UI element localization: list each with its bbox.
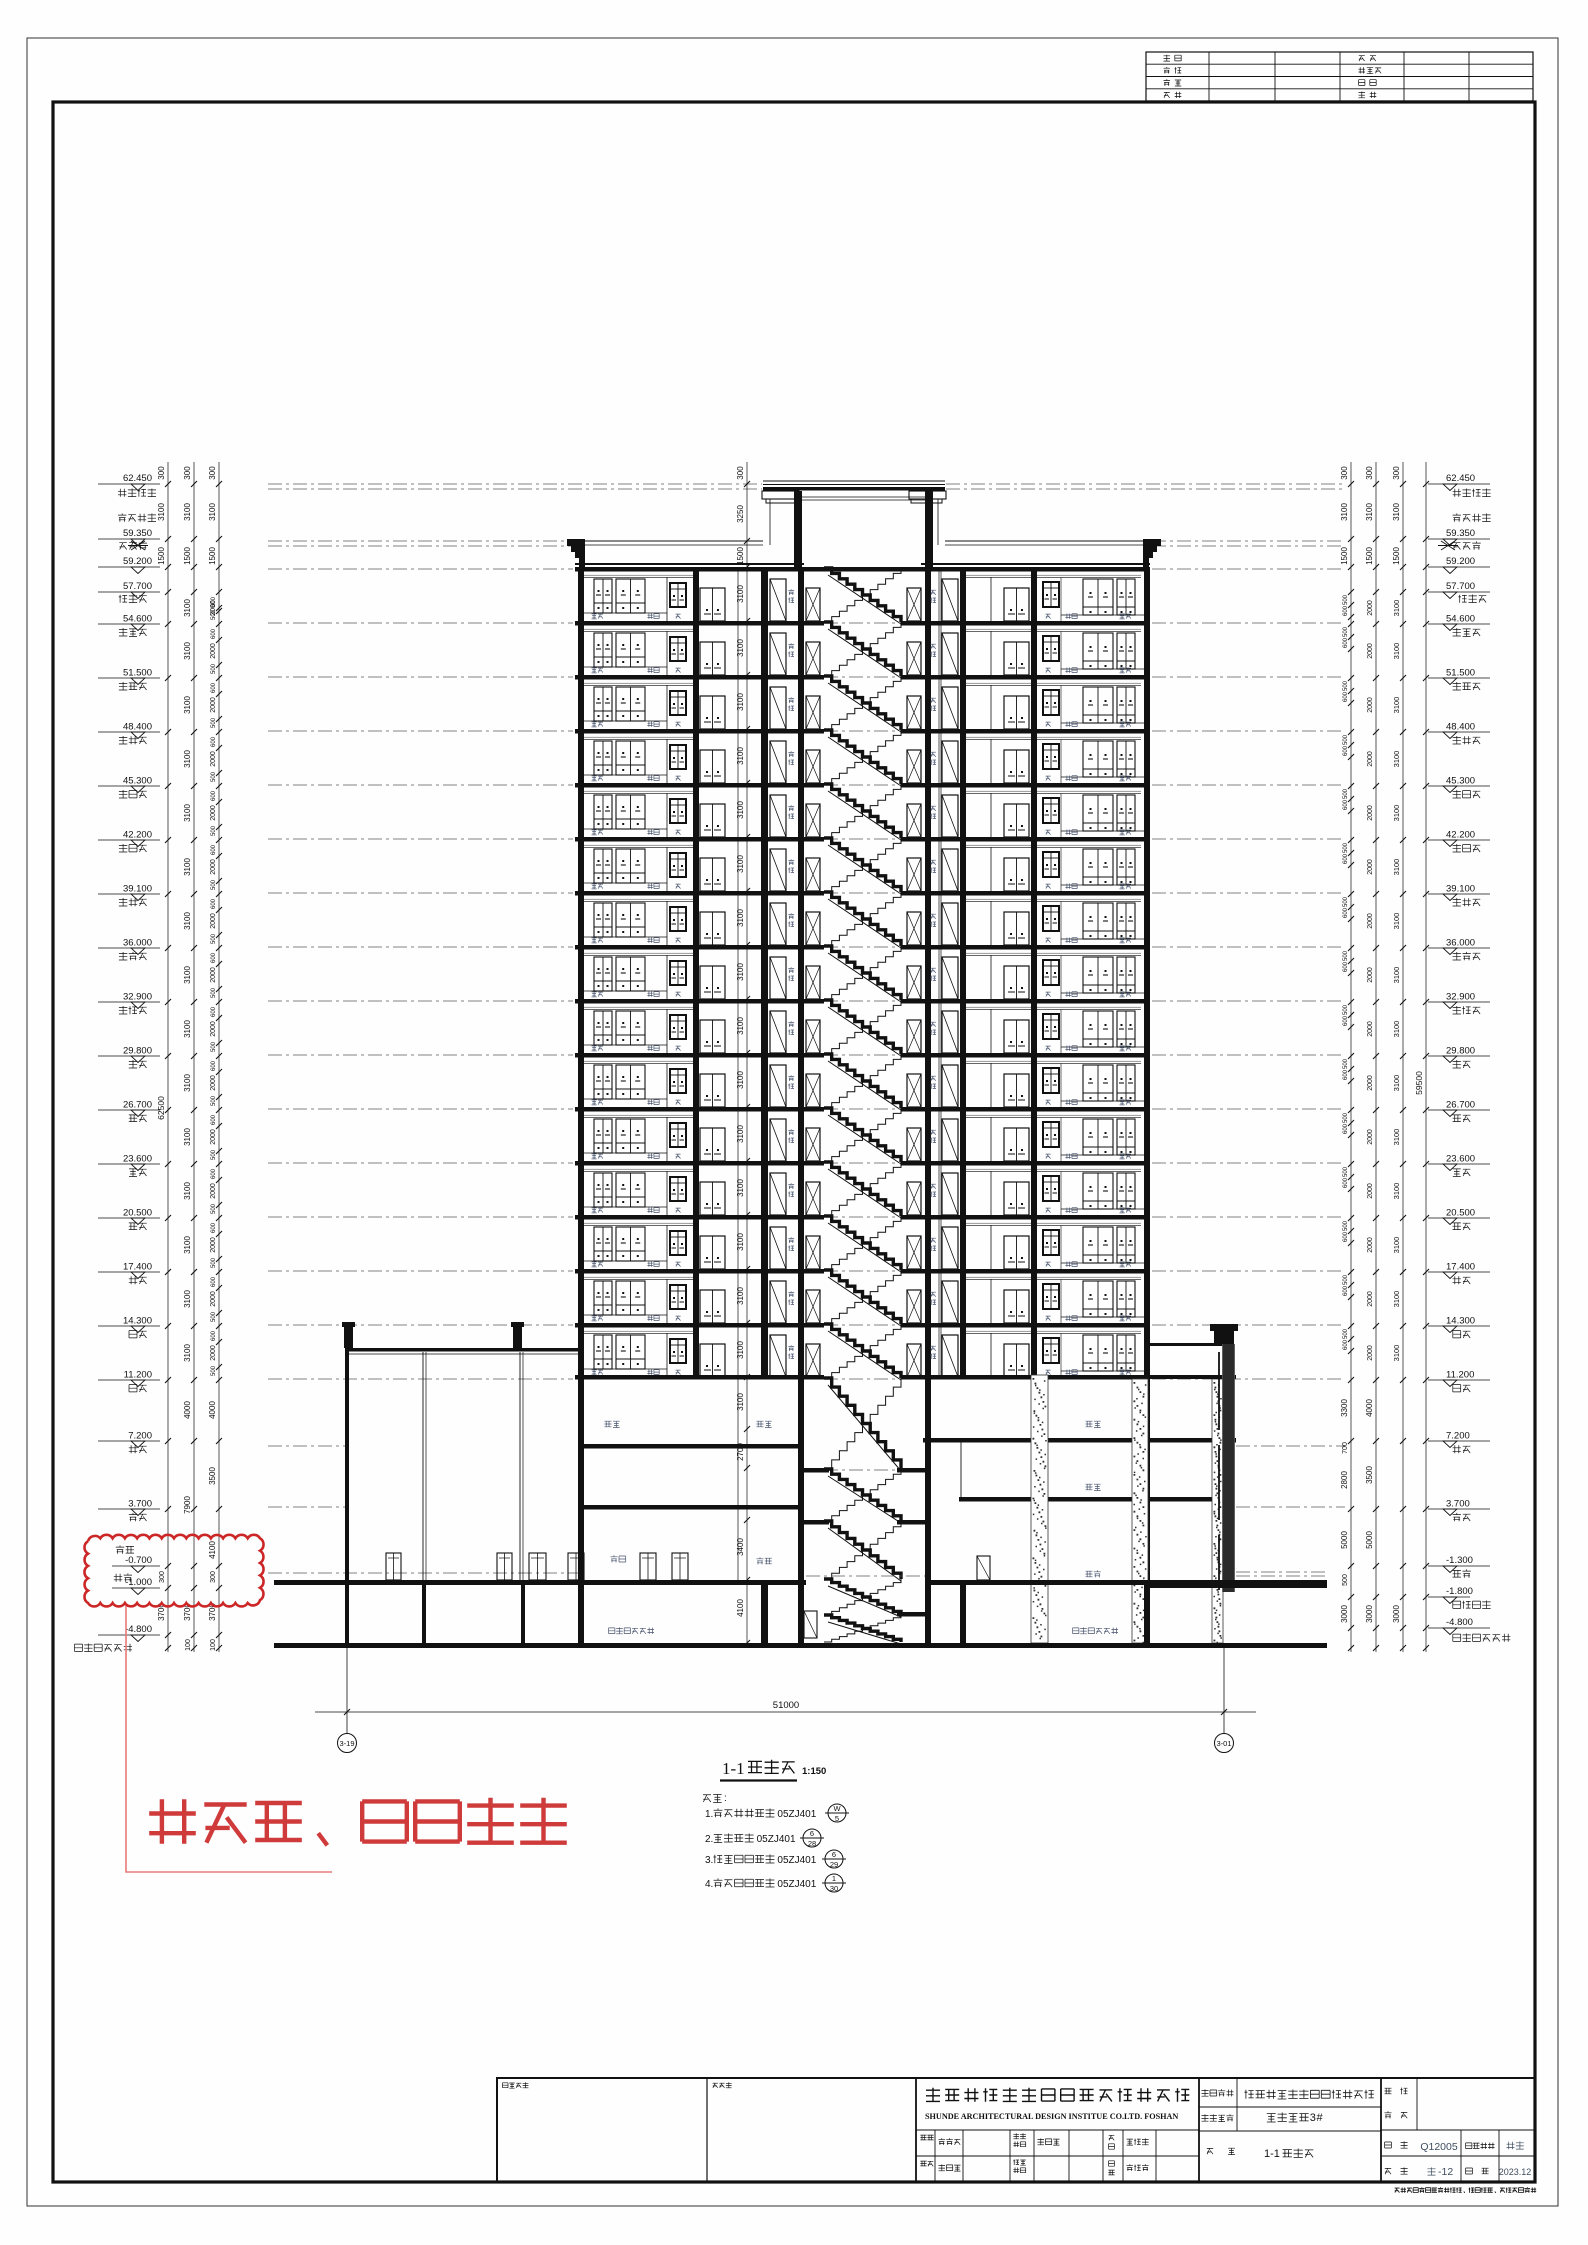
svg-text:3000: 3000 xyxy=(1392,1605,1401,1623)
svg-text:3400: 3400 xyxy=(736,1538,745,1556)
svg-text:500: 500 xyxy=(211,1149,217,1160)
svg-text:3.700: 3.700 xyxy=(1446,1499,1470,1510)
svg-text:2000: 2000 xyxy=(1367,1237,1374,1253)
svg-text:1500: 1500 xyxy=(1365,547,1374,565)
svg-text:1.: 1. xyxy=(705,1809,713,1820)
svg-text:2000: 2000 xyxy=(1367,1129,1374,1145)
svg-text:3100: 3100 xyxy=(183,750,192,768)
svg-text:500: 500 xyxy=(211,825,217,836)
svg-text:7900: 7900 xyxy=(183,1496,192,1514)
svg-text:11.200: 11.200 xyxy=(124,1370,152,1381)
svg-text:-4.800: -4.800 xyxy=(125,1624,152,1635)
svg-text:600: 600 xyxy=(1343,799,1349,810)
svg-text:3100: 3100 xyxy=(1340,503,1349,521)
svg-text:3100: 3100 xyxy=(1392,600,1401,617)
svg-text:600: 600 xyxy=(211,844,217,855)
svg-text:2000: 2000 xyxy=(210,1129,217,1145)
svg-text:1500: 1500 xyxy=(1392,547,1401,565)
svg-text:54.600: 54.600 xyxy=(1446,614,1475,625)
svg-text:2000: 2000 xyxy=(210,805,217,821)
svg-text:2000: 2000 xyxy=(1367,967,1374,983)
svg-text:59.200: 59.200 xyxy=(123,556,152,567)
svg-text:3100: 3100 xyxy=(183,912,192,930)
svg-text:2000: 2000 xyxy=(1367,1291,1374,1307)
svg-text:500: 500 xyxy=(1343,1058,1349,1069)
svg-text:17.400: 17.400 xyxy=(1446,1262,1475,1273)
svg-text:59.350: 59.350 xyxy=(123,528,152,539)
svg-text:26.700: 26.700 xyxy=(1446,1100,1475,1111)
svg-text:30: 30 xyxy=(830,1884,838,1893)
svg-text:3100: 3100 xyxy=(183,1290,192,1308)
svg-text:3100: 3100 xyxy=(736,963,745,981)
svg-text:3100: 3100 xyxy=(1392,697,1401,714)
svg-text:3500: 3500 xyxy=(1365,1466,1374,1484)
svg-text:3100: 3100 xyxy=(1392,751,1401,768)
svg-text:600: 600 xyxy=(1343,1069,1349,1080)
svg-text:-4.800: -4.800 xyxy=(1446,1617,1473,1628)
svg-text:500: 500 xyxy=(1343,626,1349,637)
svg-text:3100: 3100 xyxy=(183,1074,192,1092)
svg-text:32.900: 32.900 xyxy=(123,992,152,1003)
svg-text:600: 600 xyxy=(1343,691,1349,702)
svg-text:05ZJ401: 05ZJ401 xyxy=(777,1879,816,1890)
svg-text:500: 500 xyxy=(1343,1166,1349,1177)
svg-text:48.400: 48.400 xyxy=(123,722,152,733)
svg-text:3100: 3100 xyxy=(183,858,192,876)
svg-text:500: 500 xyxy=(1343,896,1349,907)
svg-text:7.200: 7.200 xyxy=(128,1431,152,1442)
svg-text:2000: 2000 xyxy=(1367,1075,1374,1091)
svg-text:3100: 3100 xyxy=(736,1071,745,1089)
svg-text:300: 300 xyxy=(183,466,192,480)
svg-text:2000: 2000 xyxy=(210,1183,217,1199)
svg-text:3100: 3100 xyxy=(1392,913,1401,930)
svg-text:W: W xyxy=(833,1804,841,1813)
svg-text:3100: 3100 xyxy=(1392,1291,1401,1308)
svg-text:1500: 1500 xyxy=(1340,547,1349,565)
svg-text:29.800: 29.800 xyxy=(123,1046,152,1057)
svg-text:45.300: 45.300 xyxy=(123,776,152,787)
svg-text:600: 600 xyxy=(211,628,217,639)
svg-text:1:150: 1:150 xyxy=(802,1766,826,1777)
svg-text:4100: 4100 xyxy=(208,1541,217,1559)
svg-text:#: # xyxy=(1317,2112,1324,2124)
svg-text:23.600: 23.600 xyxy=(1446,1154,1475,1165)
svg-text::: : xyxy=(724,1793,727,1804)
svg-text:3100: 3100 xyxy=(736,801,745,819)
svg-text:300: 300 xyxy=(736,466,745,480)
svg-text:42.200: 42.200 xyxy=(1446,830,1475,841)
svg-text:51000: 51000 xyxy=(773,1700,799,1711)
svg-text:3250: 3250 xyxy=(736,505,745,523)
svg-text:300: 300 xyxy=(1365,466,1374,480)
svg-text:3100: 3100 xyxy=(736,909,745,927)
svg-text:600: 600 xyxy=(211,1114,217,1125)
svg-text:-1.300: -1.300 xyxy=(1446,1555,1473,1566)
svg-text:3100: 3100 xyxy=(1392,1183,1401,1200)
svg-text:600: 600 xyxy=(211,1222,217,1233)
svg-text:4000: 4000 xyxy=(208,1401,217,1419)
svg-text:Q12005: Q12005 xyxy=(1420,2141,1458,2153)
svg-text:51.500: 51.500 xyxy=(1446,668,1475,679)
svg-text:600: 600 xyxy=(1343,605,1349,616)
svg-text:500: 500 xyxy=(1343,594,1349,605)
svg-text:42.200: 42.200 xyxy=(123,830,152,841)
svg-text:59500: 59500 xyxy=(1414,1071,1424,1095)
svg-text:3100: 3100 xyxy=(183,642,192,660)
svg-text:05ZJ401: 05ZJ401 xyxy=(777,1855,816,1866)
svg-text:39.100: 39.100 xyxy=(123,884,152,895)
svg-text:3100: 3100 xyxy=(736,1341,745,1359)
svg-text:3100: 3100 xyxy=(736,1287,745,1305)
svg-text:3100: 3100 xyxy=(1392,1075,1401,1092)
svg-text:3100: 3100 xyxy=(157,503,166,521)
svg-text:3100: 3100 xyxy=(183,1128,192,1146)
svg-text:2000: 2000 xyxy=(210,1291,217,1307)
svg-text:300: 300 xyxy=(157,466,166,480)
svg-text:500: 500 xyxy=(211,1257,217,1268)
svg-text:2000: 2000 xyxy=(210,751,217,767)
svg-text:2000: 2000 xyxy=(210,643,217,659)
svg-text:500: 500 xyxy=(211,717,217,728)
svg-text:2000: 2000 xyxy=(1367,600,1374,616)
svg-text:2000: 2000 xyxy=(210,913,217,929)
svg-text:500: 500 xyxy=(1343,950,1349,961)
svg-text:3100: 3100 xyxy=(736,1017,745,1035)
svg-text:3100: 3100 xyxy=(736,585,745,603)
svg-text:05ZJ401: 05ZJ401 xyxy=(777,1809,816,1820)
svg-text:36.000: 36.000 xyxy=(123,938,152,949)
svg-text:2000: 2000 xyxy=(1367,643,1374,659)
svg-text:2.: 2. xyxy=(705,1834,713,1845)
svg-text:-12: -12 xyxy=(1438,2166,1453,2178)
svg-text:3.700: 3.700 xyxy=(128,1499,152,1510)
svg-text:29.800: 29.800 xyxy=(1446,1046,1475,1057)
svg-text:3100: 3100 xyxy=(736,855,745,873)
svg-text:2000: 2000 xyxy=(1367,697,1374,713)
svg-text:1500: 1500 xyxy=(208,547,217,565)
svg-text:500: 500 xyxy=(1343,842,1349,853)
svg-text:36.000: 36.000 xyxy=(1446,938,1475,949)
svg-text:3000: 3000 xyxy=(1340,1605,1349,1623)
svg-text:3100: 3100 xyxy=(736,747,745,765)
svg-text:2000: 2000 xyxy=(1367,859,1374,875)
svg-text:17.400: 17.400 xyxy=(123,1262,152,1273)
svg-text:5: 5 xyxy=(835,1814,839,1823)
svg-text:500: 500 xyxy=(211,933,217,944)
svg-text:1: 1 xyxy=(832,1874,836,1883)
svg-text:500: 500 xyxy=(1343,1112,1349,1123)
svg-text:600: 600 xyxy=(211,898,217,909)
svg-text:600: 600 xyxy=(211,1060,217,1071)
svg-text:2000: 2000 xyxy=(210,1237,217,1253)
svg-text:11.200: 11.200 xyxy=(1446,1370,1474,1381)
svg-text:100: 100 xyxy=(210,1639,217,1651)
svg-text:20.500: 20.500 xyxy=(1446,1208,1475,1219)
svg-text:500: 500 xyxy=(211,1365,217,1376)
svg-text:600: 600 xyxy=(1343,961,1349,972)
svg-text:3100: 3100 xyxy=(736,1393,745,1411)
svg-text:600: 600 xyxy=(211,1330,217,1341)
svg-text:SHUNDE ARCHITECTURAL DESIGN: SHUNDE ARCHITECTURAL DESIGN INSTITUE CO.… xyxy=(925,2112,1178,2121)
svg-text:300: 300 xyxy=(210,1571,217,1583)
svg-text:2000: 2000 xyxy=(210,1075,217,1091)
svg-text:3100: 3100 xyxy=(1392,805,1401,822)
svg-text:600: 600 xyxy=(211,1276,217,1287)
svg-text:-1.800: -1.800 xyxy=(1446,1586,1473,1597)
svg-text:700: 700 xyxy=(1342,1442,1349,1454)
svg-text:57.700: 57.700 xyxy=(123,581,152,592)
svg-text:600: 600 xyxy=(1343,637,1349,648)
svg-text:28: 28 xyxy=(808,1839,816,1848)
svg-text:3500: 3500 xyxy=(208,1467,217,1485)
svg-text:2000: 2000 xyxy=(210,859,217,875)
svg-text:20.500: 20.500 xyxy=(123,1208,152,1219)
svg-text:3100: 3100 xyxy=(736,1233,745,1251)
svg-text:4000: 4000 xyxy=(183,1401,192,1419)
svg-text:600: 600 xyxy=(211,682,217,693)
svg-text:3100: 3100 xyxy=(183,696,192,714)
svg-text:600: 600 xyxy=(1343,1285,1349,1296)
svg-text:3100: 3100 xyxy=(736,1179,745,1197)
svg-text:300: 300 xyxy=(1340,466,1349,480)
svg-text:600: 600 xyxy=(211,736,217,747)
svg-text:5000: 5000 xyxy=(1340,1531,1349,1549)
svg-text:500: 500 xyxy=(211,987,217,998)
svg-text:3100: 3100 xyxy=(183,1182,192,1200)
svg-text:48.400: 48.400 xyxy=(1446,722,1475,733)
svg-text:3100: 3100 xyxy=(1392,503,1401,521)
svg-text:3-19: 3-19 xyxy=(339,1739,354,1748)
svg-text:500: 500 xyxy=(211,1311,217,1322)
svg-text:57.700: 57.700 xyxy=(1446,581,1475,592)
svg-text:2000: 2000 xyxy=(1367,1345,1374,1361)
svg-text:300: 300 xyxy=(208,466,217,480)
svg-text:3100: 3100 xyxy=(1365,503,1374,521)
svg-text:600: 600 xyxy=(1343,1177,1349,1188)
svg-text:600: 600 xyxy=(1343,1339,1349,1350)
svg-text:4000: 4000 xyxy=(1365,1399,1374,1417)
svg-text:05ZJ401: 05ZJ401 xyxy=(757,1834,796,1845)
svg-text:600: 600 xyxy=(211,790,217,801)
svg-text:500: 500 xyxy=(1343,734,1349,745)
svg-text:62500: 62500 xyxy=(156,1096,166,1120)
svg-text:29: 29 xyxy=(830,1860,838,1869)
svg-text:2000: 2000 xyxy=(1367,751,1374,767)
svg-text:1-1: 1-1 xyxy=(722,1759,745,1778)
svg-text:500: 500 xyxy=(1343,1274,1349,1285)
svg-text:500: 500 xyxy=(211,663,217,674)
svg-text:3100: 3100 xyxy=(1392,1345,1401,1362)
svg-text:500: 500 xyxy=(211,1203,217,1214)
svg-text:3100: 3100 xyxy=(1392,859,1401,876)
svg-text:3100: 3100 xyxy=(1392,1129,1401,1146)
svg-text:3100: 3100 xyxy=(183,1236,192,1254)
svg-text:600: 600 xyxy=(1343,745,1349,756)
svg-text:3100: 3100 xyxy=(736,1125,745,1143)
svg-text:3100: 3100 xyxy=(736,693,745,711)
svg-text:3100: 3100 xyxy=(736,639,745,657)
svg-text:500: 500 xyxy=(1343,788,1349,799)
svg-text:100: 100 xyxy=(185,1639,192,1651)
svg-text:23.600: 23.600 xyxy=(123,1154,152,1165)
svg-text:600: 600 xyxy=(211,1168,217,1179)
svg-text:3100: 3100 xyxy=(1392,1021,1401,1038)
svg-text:-0.700: -0.700 xyxy=(125,1555,152,1566)
svg-text:62.450: 62.450 xyxy=(1446,473,1475,484)
svg-text:14.300: 14.300 xyxy=(123,1316,152,1327)
svg-text:62.450: 62.450 xyxy=(123,473,152,484)
svg-text:500: 500 xyxy=(211,1095,217,1106)
svg-text:2000: 2000 xyxy=(1367,1021,1374,1037)
svg-text:51.500: 51.500 xyxy=(123,668,152,679)
svg-text:500: 500 xyxy=(1343,1004,1349,1015)
svg-text:600: 600 xyxy=(211,952,217,963)
svg-text:500: 500 xyxy=(1343,680,1349,691)
svg-text:59.200: 59.200 xyxy=(1446,556,1475,567)
svg-text:3.: 3. xyxy=(705,1855,713,1866)
svg-text:4.: 4. xyxy=(705,1879,713,1890)
svg-text:2000: 2000 xyxy=(210,967,217,983)
svg-text:2000: 2000 xyxy=(210,697,217,713)
svg-text:3300: 3300 xyxy=(1340,1399,1349,1417)
svg-text:600: 600 xyxy=(1343,1015,1349,1026)
svg-text:2800: 2800 xyxy=(1340,1471,1349,1489)
svg-text:600: 600 xyxy=(1343,907,1349,918)
svg-text:500: 500 xyxy=(211,879,217,890)
svg-text:-1.000: -1.000 xyxy=(125,1577,152,1588)
svg-text:3100: 3100 xyxy=(1392,643,1401,660)
svg-text:3100: 3100 xyxy=(183,503,192,521)
svg-text:1-1: 1-1 xyxy=(1264,2148,1280,2160)
svg-text:1500: 1500 xyxy=(183,547,192,565)
svg-text:3100: 3100 xyxy=(183,804,192,822)
svg-text:1500: 1500 xyxy=(157,547,166,565)
svg-text:2023.12: 2023.12 xyxy=(1499,2167,1532,2177)
svg-text:600: 600 xyxy=(1343,1231,1349,1242)
svg-text:500: 500 xyxy=(1343,1220,1349,1231)
svg-text:500: 500 xyxy=(211,771,217,782)
svg-text:45.300: 45.300 xyxy=(1446,776,1475,787)
svg-text:600: 600 xyxy=(211,1006,217,1017)
svg-text:3100: 3100 xyxy=(183,1344,192,1362)
svg-text:5000: 5000 xyxy=(1365,1531,1374,1549)
svg-text:39.100: 39.100 xyxy=(1446,884,1475,895)
svg-text:500: 500 xyxy=(1342,1574,1349,1586)
svg-text:3100: 3100 xyxy=(208,503,217,521)
svg-text:7.200: 7.200 xyxy=(1446,1431,1470,1442)
svg-text:2000: 2000 xyxy=(1367,805,1374,821)
svg-text:500: 500 xyxy=(211,1041,217,1052)
svg-text:3000: 3000 xyxy=(1365,1605,1374,1623)
svg-text:32.900: 32.900 xyxy=(1446,992,1475,1003)
svg-text:300: 300 xyxy=(159,1571,166,1583)
svg-text:3100: 3100 xyxy=(183,599,192,617)
svg-text:500: 500 xyxy=(1343,1328,1349,1339)
svg-text:3100: 3100 xyxy=(183,966,192,984)
svg-text:300: 300 xyxy=(1392,466,1401,480)
svg-text:3100: 3100 xyxy=(183,1020,192,1038)
svg-text:14.300: 14.300 xyxy=(1446,1316,1475,1327)
svg-text:6: 6 xyxy=(832,1850,836,1859)
svg-text:3: 3 xyxy=(1310,2112,1316,2124)
svg-text:2000: 2000 xyxy=(1367,1183,1374,1199)
svg-text:26.700: 26.700 xyxy=(123,1100,152,1111)
svg-text:3100: 3100 xyxy=(1392,967,1401,984)
svg-text:3100: 3100 xyxy=(1392,1237,1401,1254)
svg-text:2000: 2000 xyxy=(1367,913,1374,929)
svg-text:59.350: 59.350 xyxy=(1446,528,1475,539)
svg-text:4100: 4100 xyxy=(736,1599,745,1617)
svg-text:2000: 2000 xyxy=(210,1345,217,1361)
svg-text:2000: 2000 xyxy=(210,1021,217,1037)
svg-text:600: 600 xyxy=(1343,1123,1349,1134)
svg-text:6: 6 xyxy=(810,1829,814,1838)
svg-text:3-01: 3-01 xyxy=(1216,1739,1231,1748)
svg-text:54.600: 54.600 xyxy=(123,614,152,625)
svg-text:1500: 1500 xyxy=(736,547,745,565)
svg-text:600: 600 xyxy=(1343,853,1349,864)
